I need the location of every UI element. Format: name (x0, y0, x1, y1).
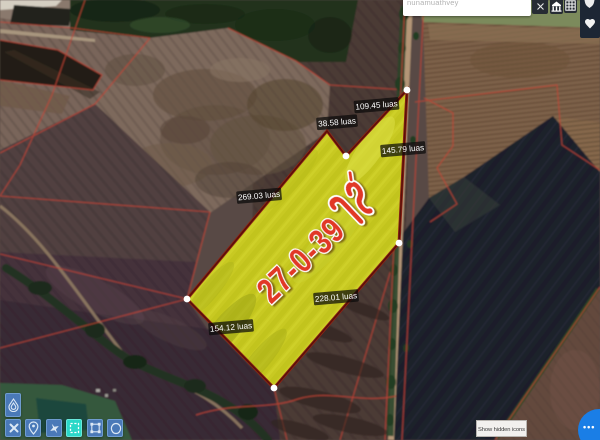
svg-text:Show hidden icons: Show hidden icons (478, 427, 525, 433)
